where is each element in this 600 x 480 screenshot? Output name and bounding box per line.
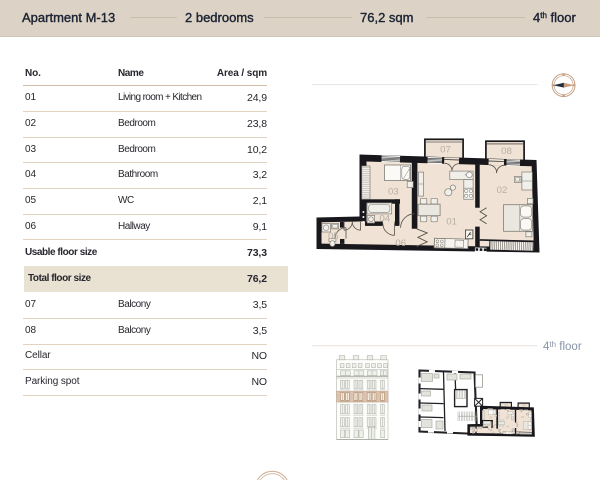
svg-text:07: 07 bbox=[440, 144, 451, 155]
svg-text:05: 05 bbox=[328, 231, 339, 242]
svg-text:02: 02 bbox=[497, 185, 508, 196]
svg-text:08: 08 bbox=[501, 146, 512, 157]
svg-text:03: 03 bbox=[388, 186, 399, 197]
svg-text:01: 01 bbox=[446, 216, 457, 227]
svg-text:06: 06 bbox=[395, 238, 406, 249]
svg-text:04: 04 bbox=[379, 213, 390, 224]
svg-text:4th floor: 4th floor bbox=[543, 340, 582, 353]
